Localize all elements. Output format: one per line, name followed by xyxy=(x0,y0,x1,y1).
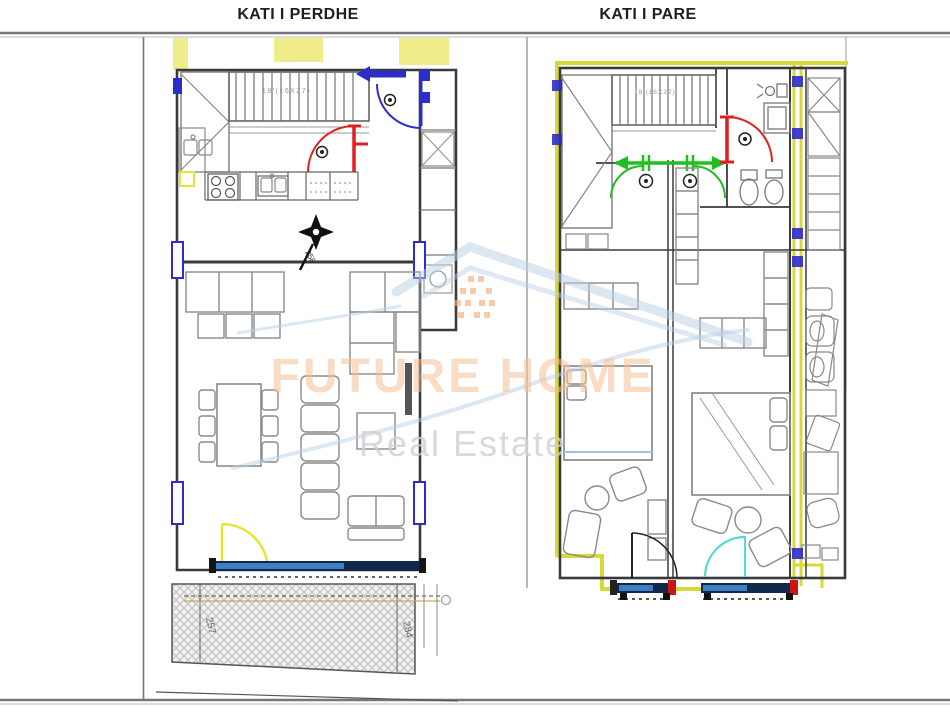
gable-windows xyxy=(455,276,495,318)
armchair xyxy=(608,465,648,502)
hall-cabinets xyxy=(566,234,608,249)
door-knob xyxy=(317,147,328,158)
floorplan-sheet: KATI I PERDHE KATI I PARE xyxy=(0,0,950,713)
faucet-icon xyxy=(757,84,787,98)
chair xyxy=(562,510,601,559)
understair-closet xyxy=(562,75,612,228)
stair-label: 18'(16X27) xyxy=(634,89,676,96)
side-table xyxy=(585,486,609,510)
balcony-door-black xyxy=(632,533,677,578)
toilet-icon xyxy=(765,170,783,204)
window-sills xyxy=(610,580,798,600)
terrace xyxy=(156,584,458,701)
roof-icon xyxy=(396,247,748,342)
kitchen xyxy=(179,128,358,200)
swoosh xyxy=(238,306,400,333)
staircase xyxy=(612,75,716,131)
loveseat xyxy=(348,496,404,540)
wall-highlight-yellow xyxy=(173,38,449,70)
balcony-door-cyan xyxy=(705,536,745,577)
sink-icon xyxy=(258,174,288,196)
bedroom-right xyxy=(676,168,793,569)
stair-label: 18'(16X27) xyxy=(262,88,311,95)
living-furniture xyxy=(186,272,420,540)
watermark-brand-text: FUTURE HOME xyxy=(258,349,668,404)
first-floor-plan: 18'(16X27) xyxy=(552,63,848,600)
door-knob xyxy=(739,133,751,145)
staircase xyxy=(229,72,369,133)
armchair xyxy=(691,497,734,535)
door-knob xyxy=(385,95,396,106)
sliding-door-sill xyxy=(209,558,426,577)
right-wing xyxy=(802,78,841,560)
sink-icon xyxy=(740,170,758,205)
bed xyxy=(692,393,790,495)
watermark-tagline-text: Real Estate xyxy=(328,423,598,465)
side-table xyxy=(735,507,761,533)
